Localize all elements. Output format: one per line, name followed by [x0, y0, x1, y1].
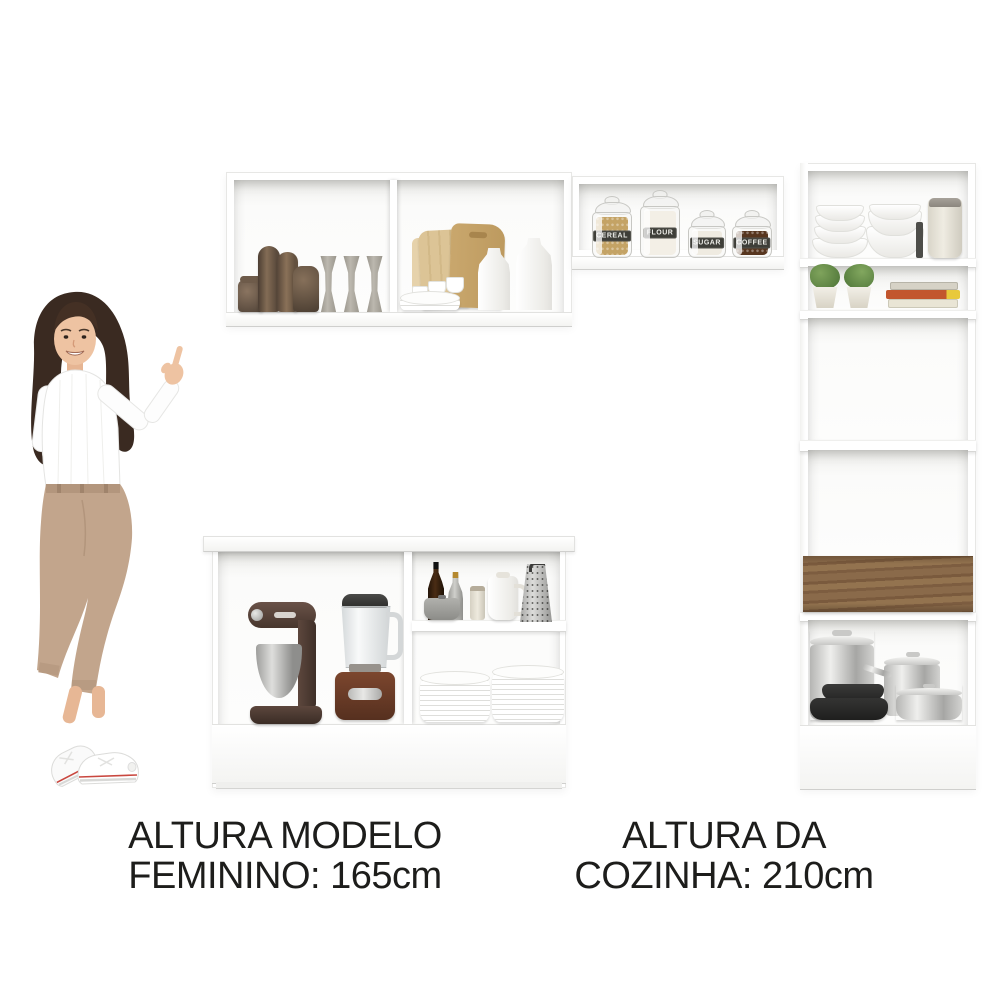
jar-label-sugar: SUGAR — [690, 237, 724, 248]
blender-jar — [340, 606, 392, 668]
book-spine-2 — [886, 290, 960, 299]
tall-cabinet-left-side — [800, 163, 808, 788]
oval-pot — [896, 684, 962, 720]
book-spine-3 — [888, 299, 958, 308]
white-pitcher — [488, 576, 518, 620]
bronze-jar-medium — [293, 266, 319, 312]
oval-pot-body — [896, 695, 962, 720]
bowl-stack-deep — [866, 206, 922, 258]
model-height-caption-line2: FEMININO: 165cm — [108, 856, 462, 896]
gray-bowl-knob — [438, 595, 446, 599]
pantry-jar-coffee: COFFEE — [732, 210, 772, 258]
plate-stack-right — [492, 670, 564, 722]
plant-pot — [811, 287, 839, 308]
book-spine-1 — [890, 282, 958, 290]
kitchen-height-caption-line2: COZINHA: 210cm — [548, 856, 900, 896]
mason-jar — [928, 198, 962, 258]
blender-collar — [349, 664, 381, 672]
jar-body: CEREAL — [592, 212, 632, 258]
stand-mixer — [248, 602, 324, 724]
mixer-front-cap — [251, 609, 263, 621]
kitchen-set-product-photo: CEREAL FLOUR SUGAR COFFEE — [0, 0, 1000, 1000]
cast-iron-pan-bottom — [810, 698, 888, 720]
kitchen-height-caption-line1: ALTURA DA — [548, 816, 900, 856]
tall-cabinet-base-door — [800, 725, 976, 790]
pantry-jar-cereal: CEREAL — [592, 196, 632, 258]
small-canister — [470, 586, 485, 620]
counter-drawer-front — [212, 724, 566, 784]
tall-cabinet-niche-lower — [808, 450, 968, 556]
model-height-caption: ALTURA MODELO FEMININO: 165cm — [108, 816, 462, 896]
counter-kickboard — [216, 782, 562, 789]
wall-cabinet-left-bottom — [226, 312, 572, 327]
countertop — [203, 536, 575, 552]
shadow-sliver — [916, 222, 923, 258]
tall-cabinet-wood-drawer — [803, 556, 973, 612]
cutting-board-handle-slot — [469, 232, 487, 239]
saucer-stack — [400, 296, 460, 310]
blender-base — [335, 672, 395, 720]
book-stack — [886, 282, 960, 308]
wall-cabinet-middle-bottom — [572, 256, 784, 270]
counter-cabinet-divider — [404, 552, 412, 724]
pantry-jar-sugar: SUGAR — [688, 210, 726, 258]
mixer-base — [250, 706, 322, 724]
canister-lid — [470, 586, 485, 591]
jar-body: COFFEE — [732, 226, 772, 258]
pantry-jar-flour: FLOUR — [640, 190, 680, 258]
plant-foliage — [844, 264, 874, 289]
plate-stack-left — [420, 676, 490, 722]
tall-cabinet-niche-upper — [808, 318, 968, 440]
mixer-bowl — [256, 644, 302, 698]
jar-body: SUGAR — [688, 226, 726, 258]
bowl-stack-shallow — [812, 207, 866, 258]
model-height-caption-line1: ALTURA MODELO — [108, 816, 462, 856]
jar-label-flour: FLOUR — [644, 228, 677, 239]
blender-handle — [386, 612, 403, 660]
wall-cabinet-left-divider — [390, 180, 397, 312]
espresso-cup-3 — [446, 277, 464, 293]
jar-label-cereal: CEREAL — [593, 230, 631, 241]
mixer-badge — [274, 612, 296, 618]
jar-label-coffee: COFFEE — [733, 237, 770, 248]
jar-body: FLOUR — [640, 206, 680, 258]
potted-plant-1 — [810, 264, 840, 308]
plant-pot — [845, 287, 873, 308]
pitcher-lid — [496, 572, 510, 578]
female-model-figure — [12, 288, 212, 800]
model-pointing-hand — [159, 345, 187, 388]
potted-plant-2 — [844, 264, 874, 308]
gray-lidded-bowl — [424, 598, 460, 620]
blender-button-panel — [348, 688, 382, 700]
mason-jar-lid — [929, 198, 961, 207]
kitchen-height-caption: ALTURA DA COZINHA: 210cm — [548, 816, 900, 896]
plant-foliage — [810, 264, 840, 289]
blender — [332, 594, 398, 724]
blender-lid — [342, 594, 388, 608]
